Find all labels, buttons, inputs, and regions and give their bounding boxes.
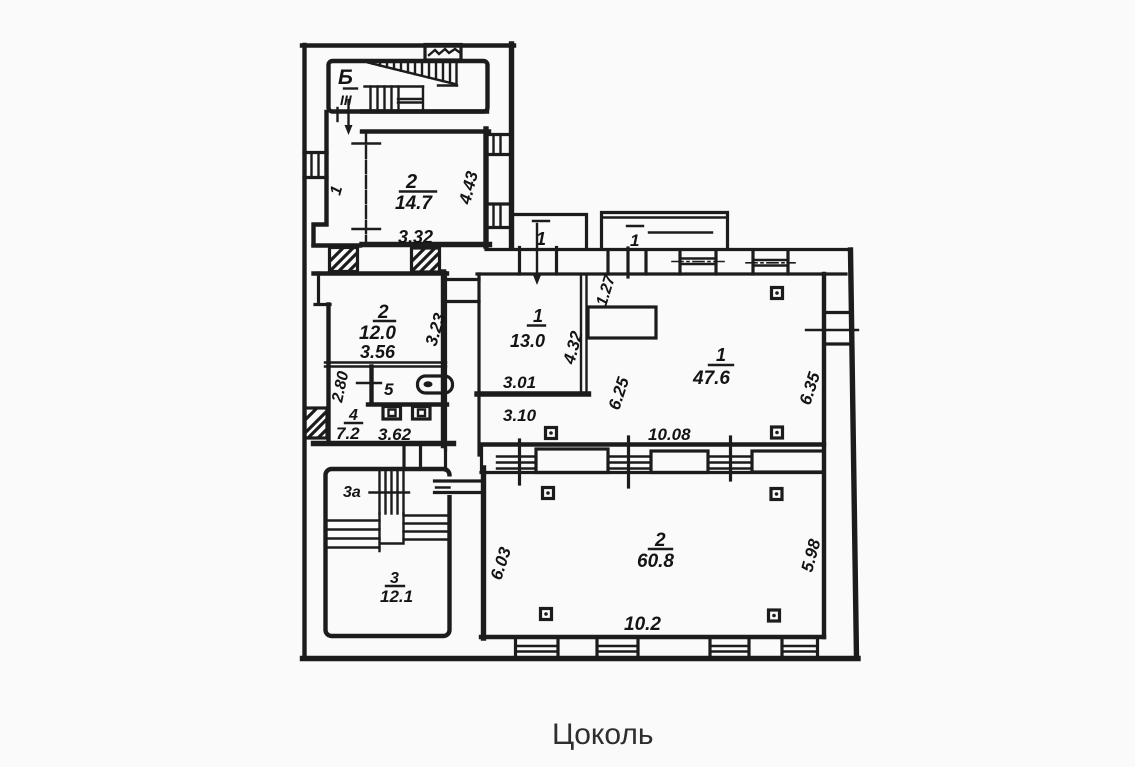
svg-text:3.32: 3.32 (398, 227, 433, 247)
svg-text:3.56: 3.56 (360, 342, 396, 362)
svg-text:3.01: 3.01 (503, 373, 536, 392)
svg-text:10.2: 10.2 (624, 614, 661, 635)
svg-text:47.6: 47.6 (692, 368, 730, 389)
svg-text:10.08: 10.08 (648, 425, 691, 444)
svg-text:4: 4 (348, 407, 358, 424)
svg-text:3: 3 (390, 570, 399, 587)
svg-text:12.0: 12.0 (359, 323, 396, 344)
svg-text:III: III (340, 92, 353, 108)
svg-text:1: 1 (533, 306, 543, 326)
svg-text:14.7: 14.7 (395, 193, 433, 214)
svg-text:3.10: 3.10 (503, 406, 537, 425)
svg-text:12.1: 12.1 (380, 587, 413, 606)
svg-text:2: 2 (405, 171, 417, 193)
svg-text:5: 5 (384, 380, 394, 399)
svg-text:1: 1 (716, 345, 726, 365)
svg-text:13.0: 13.0 (510, 331, 545, 351)
svg-text:1: 1 (630, 231, 639, 250)
svg-text:Цоколь: Цоколь (552, 718, 654, 751)
svg-text:7.2: 7.2 (336, 424, 360, 443)
svg-text:60.8: 60.8 (637, 551, 674, 572)
svg-text:3a: 3a (343, 484, 361, 501)
svg-text:3.62: 3.62 (378, 425, 412, 444)
svg-text:Б: Б (338, 66, 353, 89)
